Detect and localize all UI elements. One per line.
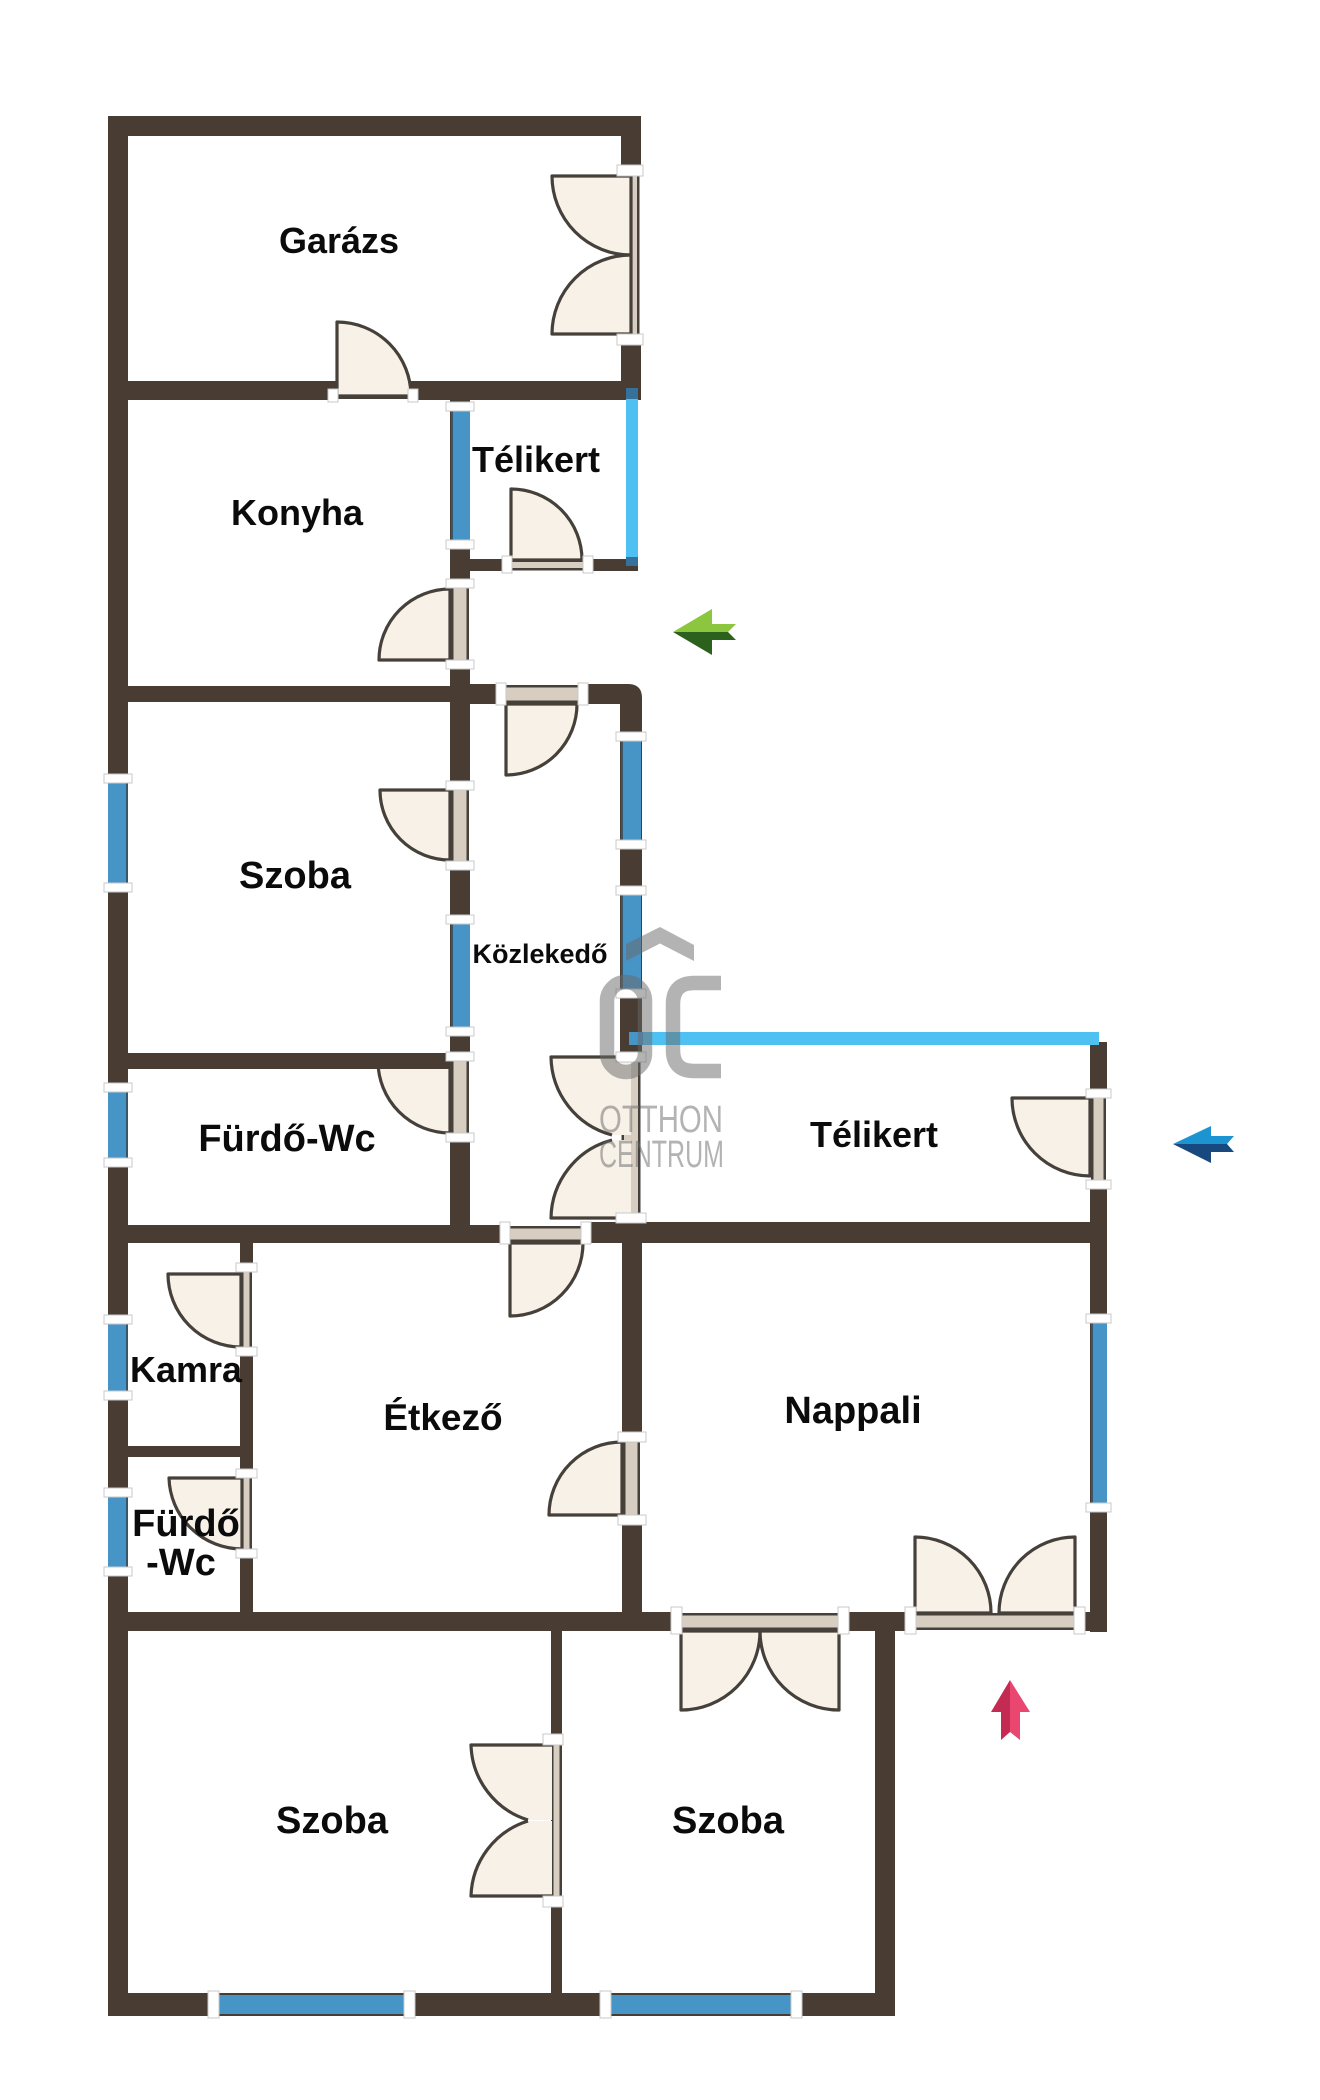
svg-text:Szoba: Szoba bbox=[672, 1800, 785, 1842]
svg-text:CENTRUM: CENTRUM bbox=[599, 1134, 724, 1176]
svg-text:Fürdő-Wc: Fürdő-Wc bbox=[198, 1118, 375, 1160]
svg-text:Szoba: Szoba bbox=[239, 855, 352, 897]
svg-text:Konyha: Konyha bbox=[231, 492, 364, 533]
svg-text:Télikert: Télikert bbox=[810, 1114, 938, 1155]
svg-text:Fürdő: Fürdő bbox=[132, 1503, 240, 1545]
svg-text:Étkező: Étkező bbox=[383, 1397, 502, 1438]
svg-text:Szoba: Szoba bbox=[276, 1800, 389, 1842]
svg-text:Télikert: Télikert bbox=[472, 439, 600, 480]
svg-text:Garázs: Garázs bbox=[279, 220, 399, 261]
svg-text:Közlekedő: Közlekedő bbox=[472, 939, 607, 969]
svg-text:Nappali: Nappali bbox=[784, 1390, 921, 1432]
svg-text:Kamra: Kamra bbox=[130, 1349, 243, 1390]
svg-text:-Wc: -Wc bbox=[146, 1542, 216, 1584]
